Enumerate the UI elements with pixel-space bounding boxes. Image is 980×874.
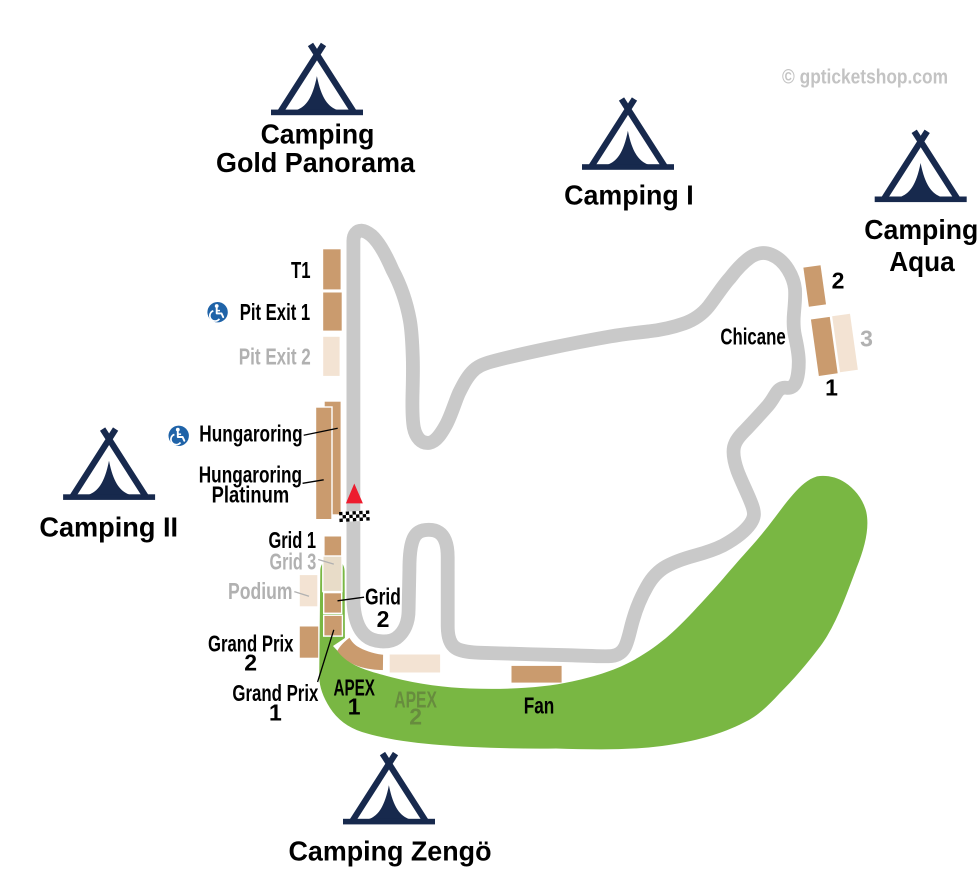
svg-text:Camping: Camping bbox=[864, 214, 978, 245]
svg-text:Pit Exit 1: Pit Exit 1 bbox=[240, 299, 311, 325]
svg-text:2: 2 bbox=[409, 704, 422, 730]
svg-text:2: 2 bbox=[377, 606, 390, 632]
svg-text:Chicane: Chicane bbox=[720, 324, 785, 350]
svg-text:Aqua: Aqua bbox=[889, 246, 955, 277]
svg-text:1: 1 bbox=[348, 694, 361, 720]
svg-text:Grid 3: Grid 3 bbox=[270, 549, 317, 575]
svg-text:Camping: Camping bbox=[261, 118, 375, 149]
svg-text:Hungaroring: Hungaroring bbox=[199, 420, 302, 446]
svg-text:Camping I: Camping I bbox=[564, 179, 694, 210]
svg-text:Pit Exit 2: Pit Exit 2 bbox=[239, 343, 311, 369]
svg-text:© gpticketshop.com: © gpticketshop.com bbox=[782, 67, 948, 89]
svg-text:Fan: Fan bbox=[524, 692, 555, 718]
svg-text:Platinum: Platinum bbox=[212, 482, 290, 508]
svg-text:3: 3 bbox=[860, 326, 873, 352]
svg-text:2: 2 bbox=[244, 650, 257, 676]
svg-text:1: 1 bbox=[269, 700, 282, 726]
svg-text:T1: T1 bbox=[291, 257, 311, 283]
svg-text:2: 2 bbox=[832, 268, 845, 294]
svg-text:Camping Zengö: Camping Zengö bbox=[289, 836, 492, 867]
svg-text:1: 1 bbox=[825, 375, 838, 401]
svg-text:Camping II: Camping II bbox=[39, 512, 178, 543]
svg-text:Gold Panorama: Gold Panorama bbox=[216, 147, 416, 178]
svg-text:Podium: Podium bbox=[228, 578, 293, 604]
